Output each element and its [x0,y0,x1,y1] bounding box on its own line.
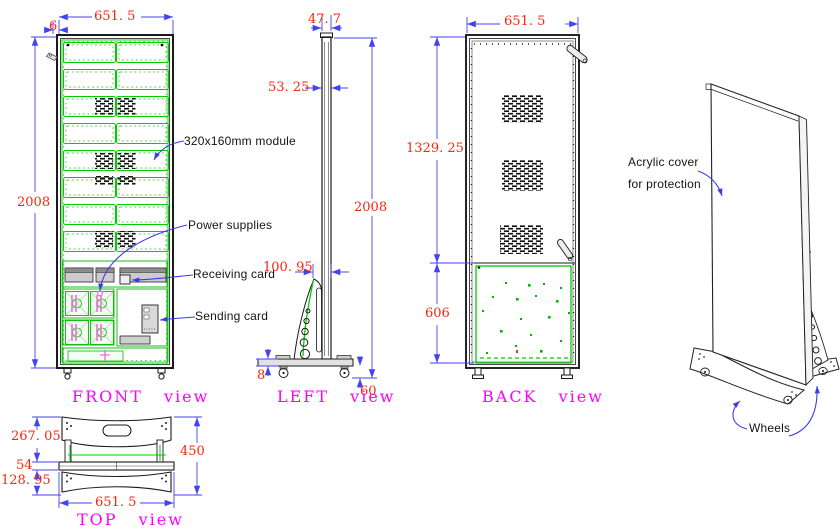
receiving-card-part [120,275,130,284]
back-feet [473,368,573,379]
front-feet [64,368,165,379]
top-rear-foot-plate [62,472,171,492]
front-frame-offset-dimension: 6 [49,20,57,34]
wheels-callout-label: Wheels [749,422,790,435]
back-door-section-dimension: 606 [425,307,450,321]
top-front-foot-plate [62,417,171,462]
back-door-panel [476,266,571,363]
back-upper-section-dimension: 1329. 25 [406,142,464,156]
acrylic-cover-callout-line1: Acrylic cover [628,156,699,169]
front-component-bay [63,261,167,364]
front-view-drawing [31,17,195,379]
left-stand-bracket [294,279,322,360]
top-front-foot-dimension: 267. 05 [11,430,61,444]
back-view-drawing [430,17,588,379]
top-cabinet-depth-dimension: 54 [16,459,33,473]
left-view-title: LEFT view [277,388,395,405]
front-view-title: FRONT view [72,388,209,405]
left-casters [279,366,349,378]
left-height-dimension: 2008 [354,201,387,215]
drawing-canvas [0,0,840,532]
top-width-dimension: 651. 5 [95,496,136,510]
acrylic-cover-callout-line2: for protection [628,178,701,191]
module-callout-label: 320x160mm module [184,135,296,148]
left-stand-depth-dimension: 100. 95 [263,261,313,275]
front-height-dimension: 2008 [17,196,50,210]
sending-card-part [142,305,158,333]
latch-icon [47,53,58,61]
top-view-title: TOP view [77,511,184,528]
back-handle-mid-icon [556,238,574,261]
back-handle-top-icon [566,44,589,64]
top-rear-foot-dimension: 128. 95 [1,474,51,488]
top-total-depth-dimension: 450 [180,445,205,459]
front-width-dimension: 651. 5 [94,10,135,24]
technical-drawing-page: 651. 5 6 2008 320x160mm module Power sup… [0,0,840,532]
sending-card-callout-label: Sending card [195,310,268,323]
iso-panel [706,84,813,385]
power-supplies-callout-label: Power supplies [188,219,272,232]
left-panel-depth-dimension: 53. 25 [268,81,309,95]
left-top-width-dimension: 47. 7 [308,13,341,27]
back-vent-pattern [500,95,543,254]
back-width-dimension: 651. 5 [504,15,545,29]
front-vent-pattern [95,98,136,248]
back-view-title: BACK view [482,388,604,405]
top-cabinet-bar [59,462,174,470]
iso-view-drawing [690,84,839,436]
left-plate-thickness-dimension: 8 [257,369,265,383]
